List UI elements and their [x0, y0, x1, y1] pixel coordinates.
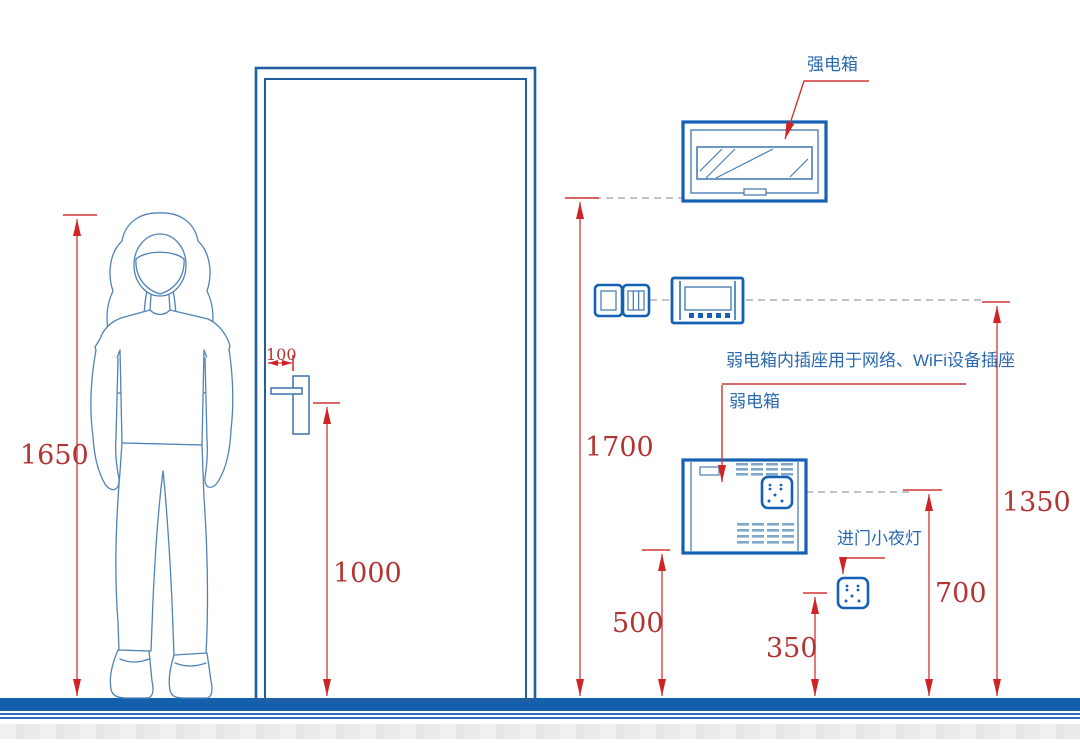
- person-pants: [116, 443, 208, 656]
- person-right-shoe: [169, 653, 212, 698]
- door-handle: [271, 376, 309, 434]
- dimension-label-1350: 1350: [1002, 489, 1071, 516]
- weak-box-label-plate: [700, 467, 719, 475]
- dimension-label-1700: 1700: [585, 434, 654, 461]
- dimension-label-350: 350: [766, 635, 810, 662]
- strong-box-window: [697, 147, 812, 179]
- entry-door: [256, 68, 535, 700]
- strong-box-latch: [744, 189, 766, 195]
- intercom-panel: [672, 278, 743, 323]
- installation-height-diagram: 1650 100 1000 1700 1350 700 500 350 强电箱 …: [0, 0, 1080, 745]
- switch-panel-single: [595, 285, 622, 316]
- diagram-canvas: [0, 0, 1080, 745]
- label-weak-current-box: 弱电箱: [729, 392, 780, 412]
- person-neck: [150, 295, 170, 310]
- dimension-label-700: 700: [935, 580, 987, 607]
- person-figure: [91, 213, 233, 698]
- intercom-screen: [685, 287, 731, 310]
- dimension-label-500: 500: [612, 610, 658, 637]
- label-wifi-socket-note: 弱电箱内插座用于网络、WiFi设备插座: [726, 351, 1015, 371]
- person-right-arm: [205, 349, 233, 487]
- weak-current-box: [683, 460, 806, 553]
- floor-line: [0, 698, 1080, 719]
- dimension-label-100: 100: [266, 347, 297, 363]
- dimension-label-1000: 1000: [333, 560, 402, 587]
- weak-box-socket: [762, 477, 792, 508]
- person-left-shoe: [110, 650, 153, 698]
- person-left-arm: [91, 350, 119, 490]
- switch-panel-triple: [623, 285, 649, 316]
- leader-night-light: [843, 558, 885, 574]
- strong-current-box: [683, 122, 826, 201]
- label-night-light: 进门小夜灯: [837, 529, 922, 549]
- dimension-label-1650: 1650: [20, 442, 78, 469]
- night-light-socket: [838, 578, 868, 608]
- label-strong-current-box: 强电箱: [807, 55, 858, 75]
- floor-shadow-band: [0, 724, 1080, 739]
